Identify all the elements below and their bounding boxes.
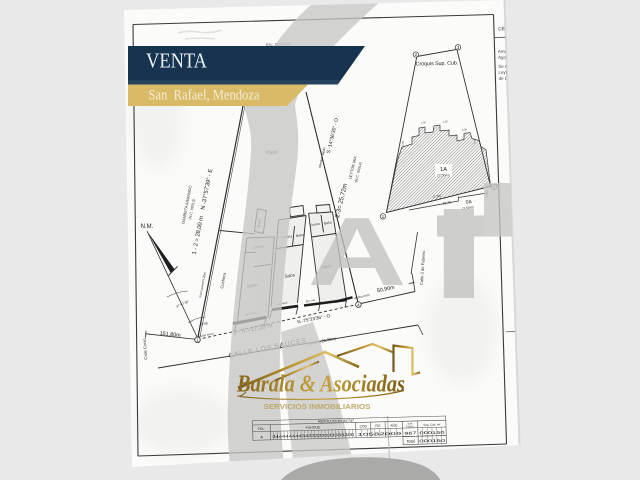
svg-text:Total: Total bbox=[406, 438, 414, 443]
svg-text:Barala & Asociadas: Barala & Asociadas bbox=[236, 372, 405, 398]
svg-text:N.M.: N.M. bbox=[141, 224, 154, 230]
svg-text:Sup. Cub. m²: Sup. Cub. m² bbox=[423, 422, 440, 426]
svg-text:SUP.: SUP. bbox=[408, 423, 413, 425]
svg-text:San Rafael, Mendoza: San Rafael, Mendoza bbox=[149, 88, 260, 104]
svg-text:COD: COD bbox=[360, 424, 368, 428]
svg-text:(3,50m): (3,50m) bbox=[437, 174, 449, 178]
svg-text:967: 967 bbox=[404, 431, 416, 435]
svg-text:PUNTAJE: PUNTAJE bbox=[306, 425, 322, 429]
svg-text:1A: 1A bbox=[440, 167, 447, 173]
svg-text:000150: 000150 bbox=[419, 438, 447, 444]
svg-text:A: A bbox=[307, 198, 406, 306]
svg-text:Croquis Sup. Cub.: Croquis Sup. Cub. bbox=[416, 60, 459, 67]
svg-text:AÑO: AÑO bbox=[390, 423, 398, 428]
svg-text:POL.: POL. bbox=[258, 427, 266, 431]
svg-text:1: 1 bbox=[196, 338, 199, 343]
svg-text:TASAC.: TASAC. bbox=[406, 425, 415, 428]
svg-text:VENTA: VENTA bbox=[146, 49, 208, 73]
svg-text:FIE: FIE bbox=[375, 424, 381, 428]
svg-text:SERVICIOS INMOBILIARIOS: SERVICIOS INMOBILIARIOS bbox=[264, 404, 371, 411]
